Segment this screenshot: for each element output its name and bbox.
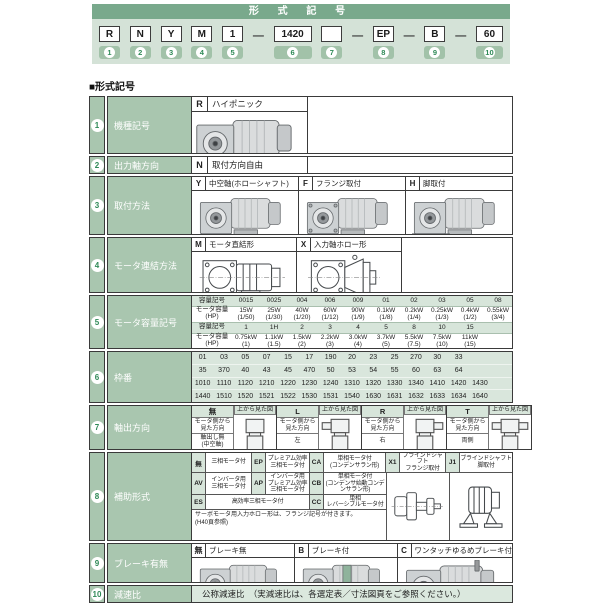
frame-number: 64 (448, 367, 469, 374)
row-number-10: 10 (89, 585, 105, 603)
model-code-strip: R 1 N 2 Y 3 M 4 1 5 — 1420 6 7 — EP (92, 19, 510, 64)
frame-number: 190 (320, 354, 341, 361)
frame-number: 1531 (320, 393, 341, 400)
shaft-dir-left: L モータ側から 見た方向 左 上から見た図 (277, 406, 362, 449)
capacity-value: 0.55kW (3/4) (484, 307, 512, 321)
row-number-3: 3 (89, 176, 105, 235)
frame-number: 55 (384, 367, 405, 374)
capacity-value: 2.2kW (3) (316, 334, 344, 348)
hollow-shaft-photo (192, 191, 298, 234)
row-output-shaft-direction: 2 出力軸方向 N 取付方向自由 (89, 156, 513, 174)
badge-5: 5 (222, 46, 243, 59)
brake-release-photo (398, 558, 513, 582)
code-separator: — (404, 30, 415, 42)
badge-2: 2 (130, 46, 151, 59)
code-unit-2: N 2 (130, 26, 151, 59)
aux-note: サーボモータ用入力ホロー形は、フランジ記号が付きます。 (H40頁参照) (192, 510, 386, 540)
coupling-hollow-input: X 入力軸ホロー形 (297, 238, 402, 292)
capacity-symbol: 0015 (232, 297, 260, 304)
frame-number: 1010 (192, 380, 213, 387)
code-unit-5: 1 5 (222, 26, 243, 59)
brake-release: C ワンタッチゆるめブレーキ付 (398, 544, 513, 582)
capacity-value: 3.0kW (4) (344, 334, 372, 348)
row-number-1: 1 (89, 96, 105, 154)
frame-number: 1520 (235, 393, 256, 400)
frame-number: 1240 (320, 380, 341, 387)
frame-number: 1330 (384, 380, 405, 387)
row-label: 軸出方向 (108, 406, 192, 449)
capacity-symbol: 8 (400, 324, 428, 331)
shaft-top-view-both (489, 415, 531, 449)
code-box-6: 1420 (274, 26, 312, 42)
frame-line-4: 1440151015201521152215301531154016301631… (192, 390, 512, 402)
row-number-6: 6 (89, 351, 105, 403)
capacity-value: 7.5kW (10) (428, 334, 456, 348)
code-box-7 (321, 26, 342, 42)
capacity-symbol: 1H (260, 324, 288, 331)
frame-number: 15 (277, 354, 298, 361)
frame-number: 33 (448, 354, 469, 361)
badge-4: 4 (191, 46, 212, 59)
frame-number: 54 (363, 367, 384, 374)
capacity-symbol: 01 (372, 297, 400, 304)
badge-9: 9 (424, 46, 445, 59)
brake-none: 無 ブレーキ無 (192, 544, 295, 582)
frame-number: 1120 (235, 380, 256, 387)
code-unit-10: 60 10 (476, 26, 503, 59)
machine-type-cell: R ハイポニック (192, 97, 308, 153)
frame-number: 1410 (427, 380, 448, 387)
code-box-4: M (191, 26, 212, 42)
frame-number: 1633 (427, 393, 448, 400)
frame-number: 1530 (299, 393, 320, 400)
frame-number: 270 (405, 354, 426, 361)
frame-number: 1440 (192, 393, 213, 400)
capacity-symbol-row-2: 容量記号 11H234581015 (192, 323, 512, 334)
capacity-value: 1.1kW (1.5) (260, 334, 288, 348)
capacity-value: 0.4kW (1/2) (456, 307, 484, 321)
brake-none-photo (192, 558, 294, 582)
capacity-value: 40W (1/20) (288, 307, 316, 321)
frame-number: 370 (213, 367, 234, 374)
capacity-symbol-row-1: 容量記号 001500250040060090102030508 (192, 296, 512, 307)
row-number-8: 8 (89, 452, 105, 541)
brake-with: B ブレーキ付 (295, 544, 398, 582)
flange-mount-photo (299, 191, 405, 234)
code-box-5: 1 (222, 26, 243, 42)
capacity-symbol: 05 (456, 297, 484, 304)
frame-number: 1420 (448, 380, 469, 387)
frame-line-1: 0103050715171902023252703033 (192, 352, 512, 365)
aux-line-1: 無 三相モータ付 EP プレミアム効率 三相モータ付 CA 単相モータ付 (コン… (192, 453, 512, 473)
row-label: ブレーキ有無 (108, 544, 192, 582)
frame-number: 35 (192, 367, 213, 374)
code-value: R (192, 97, 208, 111)
frame-number: 1634 (448, 393, 469, 400)
gearmotor-photo (192, 112, 307, 153)
frame-number: 470 (299, 367, 320, 374)
row-mounting-method: 3 取付方法 Y 中空軸(ホローシャフト) F フランジ取付 (89, 176, 513, 235)
code-unit-4: M 4 (191, 26, 212, 59)
capacity-symbol: 10 (428, 324, 456, 331)
output-direction-cell: N 取付方向自由 (192, 157, 308, 173)
frame-line-3: 1010111011201210122012301240131013201330… (192, 378, 512, 391)
frame-number: 1540 (341, 393, 362, 400)
coupling-direct: M モータ直結形 (192, 238, 297, 292)
frame-number: 1510 (213, 393, 234, 400)
row-number-7: 7 (89, 405, 105, 450)
frame-number: 1340 (405, 380, 426, 387)
code-unit-1: R 1 (99, 26, 120, 59)
frame-number: 43 (256, 367, 277, 374)
frame-number: 20 (341, 354, 362, 361)
frame-number: 40 (235, 367, 256, 374)
code-unit-6: 1420 6 (274, 26, 312, 59)
code-description: 取付方向自由 (208, 157, 307, 173)
capacity-symbol: 3 (316, 324, 344, 331)
row-label: 機種記号 (108, 97, 192, 153)
frame-number: 50 (320, 367, 341, 374)
mount-foot: H 脚取付 (406, 177, 512, 234)
row-label: 枠番 (108, 352, 192, 402)
capacity-value: 90W (1/9) (344, 307, 372, 321)
aux-line-2: AV インバータ用 三相モータ付 AP インバータ用 プレミアム効率 三相モータ… (192, 473, 386, 495)
row-label: 出力軸方向 (108, 157, 192, 173)
code-description: ハイポニック (208, 97, 307, 111)
row-label: 取付方法 (108, 177, 192, 234)
row-motor-capacity: 5 モータ容量記号 容量記号 0015002500400600901020305… (89, 295, 513, 349)
capacity-value: 3.7kW (5) (372, 334, 400, 348)
shaft-dir-right: R モータ側から 見た方向 右 上から見た図 (362, 406, 447, 449)
row-machine-type: 1 機種記号 R ハイポニック (89, 96, 513, 154)
frame-number: 1110 (213, 380, 234, 387)
blind-shaft-flange-drawing (387, 473, 450, 540)
capacity-symbol (484, 324, 512, 331)
capacity-symbol: 5 (372, 324, 400, 331)
foot-mount-photo (406, 191, 512, 234)
capacity-value: 0.1kW (1/8) (372, 307, 400, 321)
brake-with-photo (295, 558, 397, 582)
frame-number: 1220 (277, 380, 298, 387)
capacity-symbol: 4 (344, 324, 372, 331)
shaft-top-view-none (234, 415, 276, 449)
row-reduction-ratio: 10 減速比 公称減速比 （実減速比は、各選定表／寸法図頁をご参照ください。） (89, 585, 513, 603)
row-shaft-out-direction: 7 軸出方向 無 モータ側から 見た方向 軸出し無 (中空軸) 上から見た図 (89, 405, 513, 450)
capacity-value (484, 334, 512, 348)
frame-number: 23 (363, 354, 384, 361)
row-label: モータ容量記号 (108, 296, 192, 348)
badge-1: 1 (99, 46, 120, 59)
code-box-8: EP (373, 26, 394, 42)
capacity-value-row-1: モータ容量 (HP) 15W (1/50)25W (1/30)40W (1/20… (192, 307, 512, 323)
row-label: モータ連結方法 (108, 238, 192, 292)
capacity-symbol: 15 (456, 324, 484, 331)
aux-line-3: ES 高効率三相モータ付 CC 単相 レバーシブルモータ付 (192, 495, 386, 510)
code-value: N (192, 157, 208, 173)
row-number-9: 9 (89, 543, 105, 583)
frame-number: 07 (256, 354, 277, 361)
row-brake: 9 ブレーキ有無 無 ブレーキ無 B ブレーキ付 (89, 543, 513, 583)
mount-flange: F フランジ取付 (299, 177, 406, 234)
row-label: 補助形式 (108, 453, 192, 540)
code-box-10: 60 (476, 26, 503, 42)
code-box-2: N (130, 26, 151, 42)
capacity-value: 25W (1/30) (260, 307, 288, 321)
row-number-5: 5 (89, 295, 105, 349)
capacity-symbol: 009 (344, 297, 372, 304)
frame-number: 1631 (384, 393, 405, 400)
capacity-symbol: 006 (316, 297, 344, 304)
row-frame-number: 6 枠番 0103050715171902023252703033 353704… (89, 351, 513, 403)
section-heading: ■形式記号 (89, 78, 513, 93)
capacity-symbol: 1 (232, 324, 260, 331)
capacity-value: 15W (1/50) (232, 307, 260, 321)
frame-number: 1632 (405, 393, 426, 400)
frame-number: 63 (427, 367, 448, 374)
page-title: 形 式 記 号 (92, 4, 510, 19)
code-separator: — (352, 30, 363, 42)
badge-8: 8 (373, 46, 394, 59)
shaft-top-view-left (319, 415, 361, 449)
frame-number: 45 (277, 367, 298, 374)
code-box-3: Y (161, 26, 182, 42)
code-unit-9: B 9 (424, 26, 445, 59)
frame-number: 1522 (277, 393, 298, 400)
row-motor-coupling: 4 モータ連結方法 M モータ直結形 X 入力軸ホロー形 (89, 237, 513, 293)
badge-3: 3 (161, 46, 182, 59)
frame-number: 25 (384, 354, 405, 361)
frame-number: 17 (299, 354, 320, 361)
spacer (402, 238, 512, 292)
mount-hollow-shaft: Y 中空軸(ホローシャフト) (192, 177, 299, 234)
frame-number: 1430 (469, 380, 490, 387)
frame-number: 1630 (363, 393, 384, 400)
capacity-symbol: 0025 (260, 297, 288, 304)
hollow-input-drawing (297, 252, 401, 292)
catalog-page: 形 式 記 号 R 1 N 2 Y 3 M 4 1 5 — 1420 6 7 (89, 0, 513, 605)
frame-number: 1320 (363, 380, 384, 387)
capacity-value: 0.25kW (1/3) (428, 307, 456, 321)
badge-6: 6 (274, 46, 312, 59)
capacity-value: 5.5kW (7.5) (400, 334, 428, 348)
shaft-dir-none: 無 モータ側から 見た方向 軸出し無 (中空軸) 上から見た図 (192, 406, 277, 449)
row-number-2: 2 (89, 156, 105, 174)
capacity-symbol: 004 (288, 297, 316, 304)
frame-number: 60 (405, 367, 426, 374)
badge-10: 10 (476, 46, 503, 59)
frame-number: 03 (213, 354, 234, 361)
capacity-symbol: 02 (400, 297, 428, 304)
capacity-symbol: 2 (288, 324, 316, 331)
capacity-value: 60W (1/12) (316, 307, 344, 321)
capacity-symbol: 08 (484, 297, 512, 304)
frame-number: 30 (427, 354, 448, 361)
frame-number: 1521 (256, 393, 277, 400)
frame-number: 1230 (299, 380, 320, 387)
frame-number: 53 (341, 367, 362, 374)
frame-number: 05 (235, 354, 256, 361)
frame-number: 1210 (256, 380, 277, 387)
frame-line-2: 3537040434547050535455606364 (192, 365, 512, 378)
code-unit-8: EP 8 (373, 26, 394, 59)
code-box-9: B (424, 26, 445, 42)
blind-shaft-foot-drawing (450, 473, 512, 540)
row-auxiliary-type: 8 補助形式 無 三相モータ付 EP プレミアム効率 三相モータ付 CA 単相モ… (89, 452, 513, 541)
shaft-dir-both: T モータ側から 見た方向 両側 上から見た図 (447, 406, 531, 449)
code-separator: — (253, 30, 264, 42)
capacity-value: 11kW (15) (456, 334, 484, 348)
code-box-1: R (99, 26, 120, 42)
code-unit-7: 7 (321, 26, 342, 59)
shaft-top-view-right (404, 415, 446, 449)
capacity-value: 1.5kW (2) (288, 334, 316, 348)
frame-number: 1640 (469, 393, 490, 400)
code-separator: — (455, 30, 466, 42)
capacity-value: 0.75kW (1) (232, 334, 260, 348)
capacity-value: 0.2kW (1/4) (400, 307, 428, 321)
frame-number: 01 (192, 354, 213, 361)
badge-7: 7 (321, 46, 342, 59)
capacity-value-row-2: モータ容量 (HP) 0.75kW (1)1.1kW (1.5)1.5kW (2… (192, 334, 512, 349)
frame-number: 1310 (341, 380, 362, 387)
capacity-symbol: 03 (428, 297, 456, 304)
row-number-4: 4 (89, 237, 105, 293)
code-unit-3: Y 3 (161, 26, 182, 59)
direct-motor-drawing (192, 252, 296, 292)
